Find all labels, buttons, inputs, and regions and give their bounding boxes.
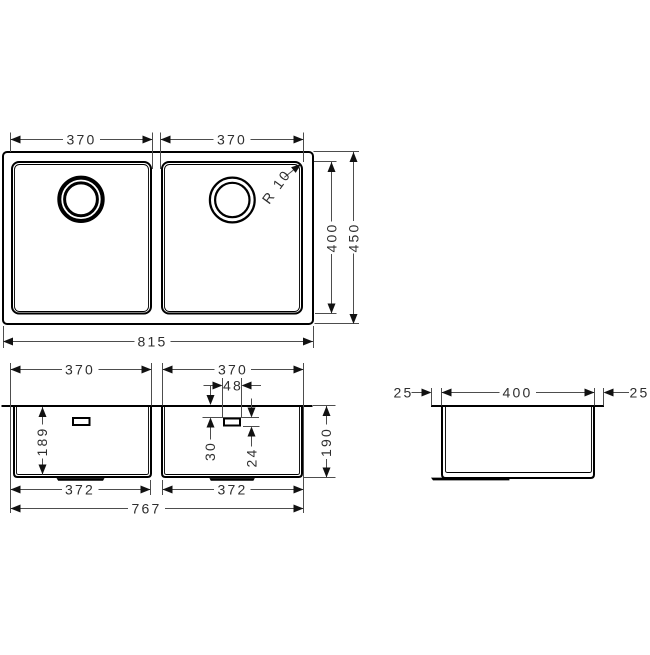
- svg-text:24: 24: [244, 448, 260, 468]
- svg-text:370: 370: [218, 361, 248, 377]
- svg-text:25: 25: [630, 384, 650, 400]
- svg-text:25: 25: [394, 384, 414, 400]
- svg-text:372: 372: [218, 481, 248, 497]
- svg-text:372: 372: [65, 481, 95, 497]
- svg-text:400: 400: [323, 223, 339, 253]
- svg-text:370: 370: [67, 131, 97, 147]
- svg-text:450: 450: [345, 223, 361, 253]
- svg-text:767: 767: [132, 500, 162, 516]
- svg-text:400: 400: [503, 384, 533, 400]
- svg-text:48: 48: [223, 377, 243, 393]
- svg-text:370: 370: [65, 361, 95, 377]
- svg-text:30: 30: [202, 441, 218, 461]
- svg-text:370: 370: [217, 131, 247, 147]
- svg-text:189: 189: [34, 427, 50, 457]
- svg-text:815: 815: [138, 333, 168, 349]
- svg-text:190: 190: [318, 427, 334, 457]
